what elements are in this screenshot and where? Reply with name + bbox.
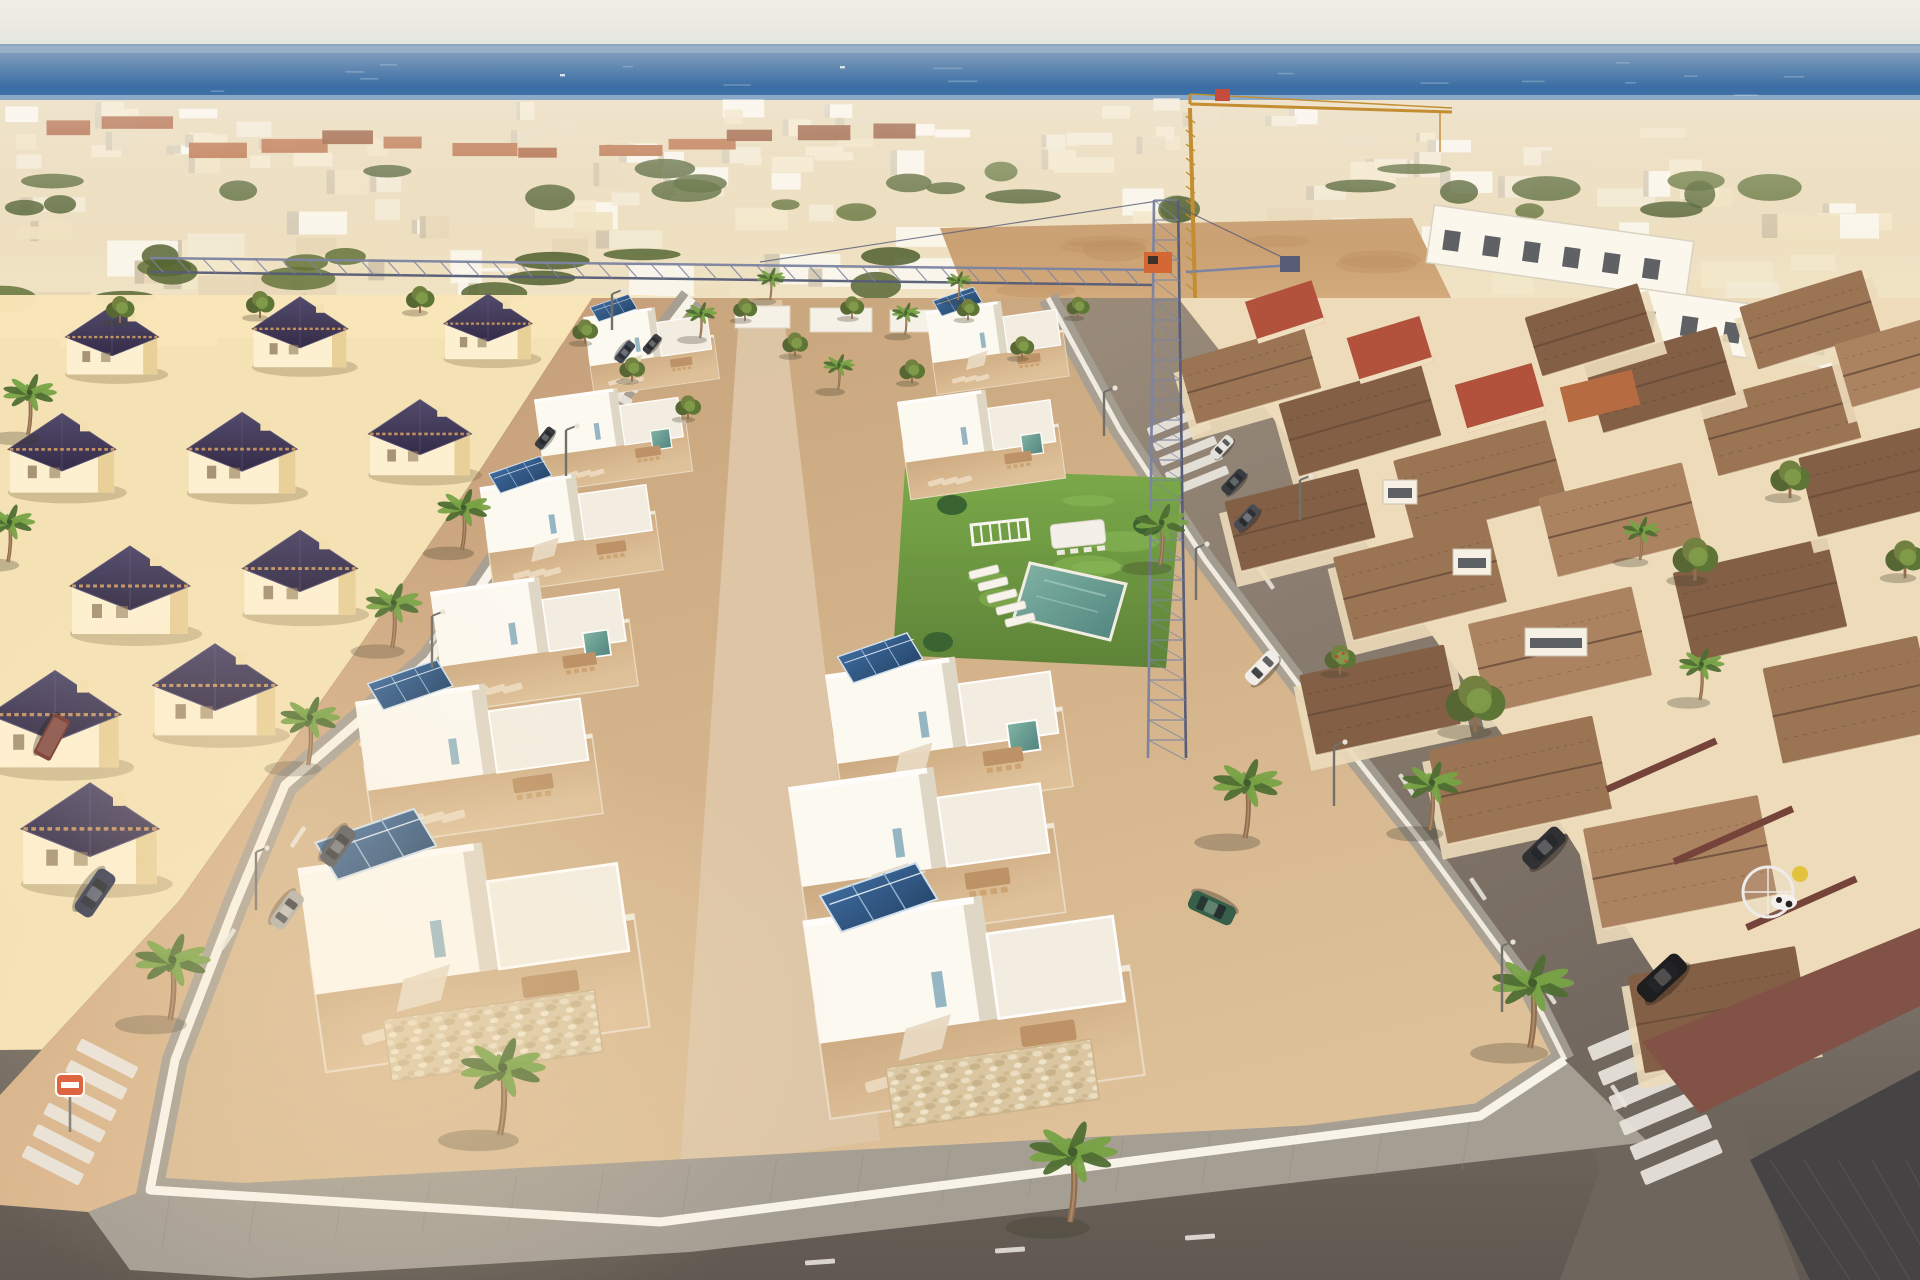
aerial-photo-stage bbox=[0, 0, 1920, 1280]
aerial-photo bbox=[0, 0, 1920, 1280]
sun-flare-overlay bbox=[0, 0, 1920, 1280]
